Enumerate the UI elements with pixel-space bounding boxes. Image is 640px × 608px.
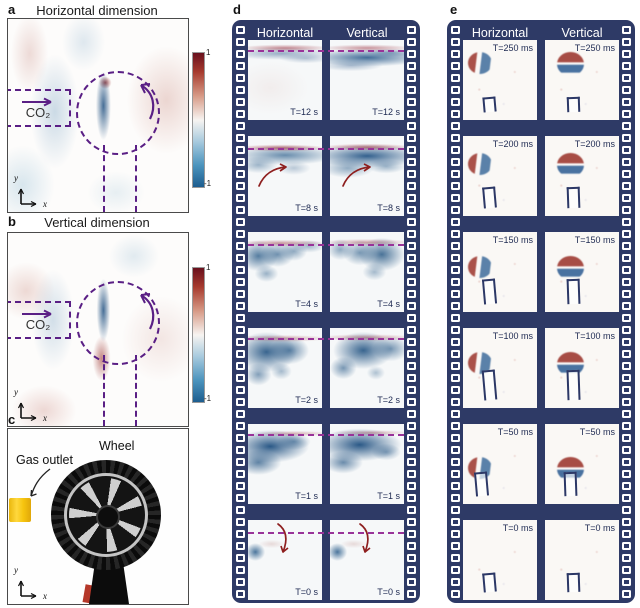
sprocket-hole [407, 338, 416, 346]
sprocket-hole [451, 230, 460, 238]
sprocket-hole [236, 494, 245, 502]
axis-arrows-icon [14, 390, 44, 422]
axis-arrows-icon [14, 176, 44, 208]
sprocket-hole [236, 362, 245, 370]
frame-e-250ms-horizontal: T=250 ms [463, 40, 537, 120]
sprocket-hole [622, 278, 631, 286]
outlet-tube-outline [566, 370, 580, 400]
sprocket-hole [407, 410, 416, 418]
time-label: T=150 ms [575, 235, 615, 245]
frame-e-250ms-vertical: T=250 ms [545, 40, 619, 120]
sprocket-hole [451, 62, 460, 70]
time-label: T=4 s [377, 299, 400, 309]
sprocket-hole [622, 158, 631, 166]
sprocket-hole [236, 26, 245, 34]
sprocket-hole [407, 386, 416, 394]
frame-d-1s-horizontal: T=1 s [248, 424, 322, 504]
sprocket-hole [236, 422, 245, 430]
time-label: T=200 ms [493, 139, 533, 149]
sprocket-hole [407, 566, 416, 574]
sprocket-hole [451, 146, 460, 154]
axis-y-label: y [14, 173, 18, 183]
panel-b-image: CO₂ y x [7, 232, 189, 427]
outlet-tube-outline [567, 279, 581, 304]
gas-outlet-nozzle [9, 498, 31, 522]
sprocket-hole [407, 494, 416, 502]
time-label: T=0 ms [503, 523, 533, 533]
wheel-hub [96, 505, 120, 529]
sprocket-hole [622, 254, 631, 262]
sprocket-hole [451, 38, 460, 46]
gas-level-dashed-line [248, 148, 404, 150]
sprocket-hole [407, 314, 416, 322]
colorbar-a [192, 52, 205, 188]
sprocket-hole [451, 578, 460, 586]
rotation-arrow-icon [126, 79, 156, 123]
sprocket-hole [407, 398, 416, 406]
sprocket-hole [236, 230, 245, 238]
sprocket-hole [622, 110, 631, 118]
frame-d-12s-horizontal: T=12 s [248, 40, 322, 120]
sprocket-hole [622, 134, 631, 142]
time-label: T=1 s [377, 491, 400, 501]
gas-level-dashed-line [248, 338, 404, 340]
sprocket-hole [451, 506, 460, 514]
sprocket-hole [451, 338, 460, 346]
sprocket-hole [236, 458, 245, 466]
frame-d-2s-vertical: T=2 s [330, 328, 404, 408]
film-sprockets-right [619, 20, 634, 603]
sprocket-hole [407, 50, 416, 58]
sprocket-hole [407, 26, 416, 34]
sprocket-hole [622, 38, 631, 46]
sprocket-hole [622, 566, 631, 574]
sprocket-hole [451, 158, 460, 166]
pointer-arrow-icon [24, 467, 54, 501]
sprocket-hole [622, 314, 631, 322]
sprocket-hole [407, 110, 416, 118]
frame-e-50ms-horizontal: T=50 ms [463, 424, 537, 504]
sprocket-hole [407, 86, 416, 94]
frame-e-100ms-vertical: T=100 ms [545, 328, 619, 408]
outlet-tube-outline [482, 369, 498, 400]
sprocket-hole [407, 506, 416, 514]
sprocket-hole [622, 122, 631, 130]
sprocket-hole [622, 386, 631, 394]
sprocket-hole [407, 542, 416, 550]
sprocket-hole [407, 62, 416, 70]
axis-y-label: y [14, 565, 18, 575]
wheel-stem-outline [103, 355, 137, 426]
sprocket-hole [236, 518, 245, 526]
colorbar-b [192, 267, 205, 403]
sprocket-hole [451, 278, 460, 286]
sprocket-hole [451, 254, 460, 262]
sprocket-hole [236, 74, 245, 82]
sprocket-hole [451, 326, 460, 334]
film-strip-seconds: Horizontal Vertical T=12 s T=12 s T=8 s … [232, 20, 420, 603]
frame-e-0ms-horizontal: T=0 ms [463, 520, 537, 600]
sprocket-hole [236, 542, 245, 550]
time-label: T=1 s [295, 491, 318, 501]
vortex-blob [557, 256, 584, 280]
sprocket-hole [451, 458, 460, 466]
sprocket-hole [451, 314, 460, 322]
outlet-tube-outline [567, 187, 581, 208]
co2-inlet-box: CO₂ [7, 89, 71, 127]
sprocket-hole [451, 182, 460, 190]
sprocket-hole [407, 266, 416, 274]
wheel-label: Wheel [99, 439, 134, 453]
time-label: T=12 s [290, 107, 318, 117]
drop-arrow-icon [352, 522, 378, 558]
sprocket-hole [451, 374, 460, 382]
sprocket-hole [451, 98, 460, 106]
outlet-tube-outline [482, 278, 497, 304]
sprocket-hole [236, 194, 245, 202]
sprocket-hole [622, 230, 631, 238]
axis-x-label: x [43, 591, 47, 601]
sprocket-hole [622, 218, 631, 226]
sprocket-hole [622, 554, 631, 562]
time-label: T=2 s [295, 395, 318, 405]
figure-page: a Horizontal dimension CO₂ y x 1 -1 b [0, 0, 640, 608]
co2-inlet-box: CO₂ [7, 301, 71, 339]
sprocket-hole [236, 470, 245, 478]
film-strip-milliseconds: Horizontal Vertical T=250 ms T=250 ms T=… [447, 20, 635, 603]
sprocket-hole [236, 278, 245, 286]
sprocket-hole [622, 458, 631, 466]
sprocket-hole [451, 170, 460, 178]
sprocket-hole [622, 302, 631, 310]
sprocket-hole [407, 434, 416, 442]
time-label: T=100 ms [493, 331, 533, 341]
sprocket-hole [451, 410, 460, 418]
sprocket-hole [407, 362, 416, 370]
frame-e-50ms-vertical: T=50 ms [545, 424, 619, 504]
axis-x-label: x [43, 199, 47, 209]
sprocket-hole [407, 146, 416, 154]
panel-a-title: Horizontal dimension [7, 3, 187, 18]
time-label: T=150 ms [493, 235, 533, 245]
sprocket-hole [407, 590, 416, 598]
sprocket-hole [407, 518, 416, 526]
frame-d-2s-horizontal: T=2 s [248, 328, 322, 408]
sprocket-hole [407, 122, 416, 130]
wheel-photo [51, 460, 161, 570]
sprocket-hole [622, 518, 631, 526]
sprocket-hole [407, 230, 416, 238]
sprocket-hole [407, 446, 416, 454]
time-label: T=200 ms [575, 139, 615, 149]
sprocket-hole [451, 302, 460, 310]
sprocket-hole [236, 182, 245, 190]
sprocket-hole [622, 542, 631, 550]
sprocket-hole [451, 386, 460, 394]
frame-e-200ms-vertical: T=200 ms [545, 136, 619, 216]
film-sprockets-left [448, 20, 463, 603]
sprocket-hole [236, 110, 245, 118]
colorbar-a-min: -1 [204, 179, 211, 188]
frame-d-12s-vertical: T=12 s [330, 40, 404, 120]
axis-x-label: x [43, 413, 47, 423]
sprocket-hole [451, 266, 460, 274]
colorbar-b-max: 1 [206, 263, 210, 272]
sprocket-hole [407, 422, 416, 430]
column-header-horizontal: Horizontal [463, 26, 537, 40]
sprocket-hole [451, 494, 460, 502]
time-label: T=250 ms [493, 43, 533, 53]
sprocket-hole [622, 266, 631, 274]
frame-e-0ms-vertical: T=0 ms [545, 520, 619, 600]
sprocket-hole [622, 326, 631, 334]
sprocket-hole [622, 350, 631, 358]
sprocket-hole [236, 398, 245, 406]
wheel-stem-outline [103, 145, 137, 212]
co2-label: CO₂ [26, 319, 51, 331]
column-header-horizontal: Horizontal [248, 26, 322, 40]
axis-indicator: y x [14, 390, 44, 422]
sprocket-hole [236, 62, 245, 70]
sprocket-hole [451, 398, 460, 406]
axis-y-label: y [14, 387, 18, 397]
column-header-vertical: Vertical [545, 26, 619, 40]
sprocket-hole [622, 578, 631, 586]
sprocket-hole [236, 350, 245, 358]
vortex-blob [557, 153, 584, 177]
sprocket-hole [236, 86, 245, 94]
sprocket-hole [407, 254, 416, 262]
frame-e-100ms-horizontal: T=100 ms [463, 328, 537, 408]
sprocket-hole [407, 134, 416, 142]
sprocket-hole [407, 206, 416, 214]
sprocket-hole [451, 350, 460, 358]
time-label: T=4 s [295, 299, 318, 309]
sprocket-hole [451, 446, 460, 454]
sprocket-hole [236, 146, 245, 154]
vortex-blob [468, 256, 492, 278]
sprocket-hole [622, 194, 631, 202]
sprocket-hole [407, 578, 416, 586]
sprocket-hole [236, 554, 245, 562]
sprocket-hole [236, 590, 245, 598]
time-label: T=0 s [295, 587, 318, 597]
sprocket-hole [622, 506, 631, 514]
panel-d-label: d [233, 2, 241, 17]
wheel-rim [64, 473, 148, 557]
frame-d-1s-vertical: T=1 s [330, 424, 404, 504]
sprocket-hole [622, 26, 631, 34]
sprocket-hole [622, 422, 631, 430]
outlet-tube-outline [567, 573, 581, 592]
sprocket-hole [407, 242, 416, 250]
sprocket-hole [451, 590, 460, 598]
gas-level-dashed-line [248, 434, 404, 436]
time-label: T=0 ms [585, 523, 615, 533]
vortex-blob [468, 153, 492, 175]
gas-level-dashed-line [248, 50, 404, 52]
sprocket-hole [451, 242, 460, 250]
sprocket-hole [236, 170, 245, 178]
sprocket-hole [451, 74, 460, 82]
sprocket-hole [451, 290, 460, 298]
sprocket-hole [407, 470, 416, 478]
sprocket-hole [622, 590, 631, 598]
sprocket-hole [236, 218, 245, 226]
sprocket-hole [622, 146, 631, 154]
gas-level-dashed-line [248, 244, 404, 246]
sprocket-hole [451, 218, 460, 226]
axis-arrows-icon [14, 568, 44, 600]
film-sprockets-right [404, 20, 419, 603]
gas-outlet-label: Gas outlet [16, 453, 73, 467]
sprocket-hole [407, 218, 416, 226]
time-label: T=8 s [377, 203, 400, 213]
rotation-arrow-icon [126, 289, 156, 333]
outlet-tube-outline [482, 96, 496, 112]
swirl-arrow-icon [256, 162, 294, 188]
sprocket-hole [622, 410, 631, 418]
axis-indicator: y x [14, 568, 44, 600]
sprocket-hole [407, 458, 416, 466]
sprocket-hole [451, 122, 460, 130]
sprocket-hole [407, 98, 416, 106]
sprocket-hole [622, 74, 631, 82]
drop-arrow-icon [270, 522, 296, 558]
outlet-tube-outline [482, 186, 497, 208]
wheel-arm [89, 565, 129, 604]
sprocket-hole [407, 38, 416, 46]
colorbar-a-max: 1 [206, 48, 210, 57]
sprocket-hole [407, 530, 416, 538]
time-label: T=100 ms [575, 331, 615, 341]
sprocket-hole [407, 170, 416, 178]
sprocket-hole [451, 434, 460, 442]
swirl-arrow-icon [340, 162, 378, 188]
sprocket-hole [236, 374, 245, 382]
outlet-tube-outline [482, 572, 497, 592]
sprocket-hole [451, 530, 460, 538]
time-label: T=50 ms [580, 427, 615, 437]
sprocket-hole [622, 242, 631, 250]
sprocket-hole [407, 554, 416, 562]
sprocket-hole [451, 554, 460, 562]
sprocket-hole [236, 434, 245, 442]
sprocket-hole [236, 530, 245, 538]
sprocket-hole [407, 326, 416, 334]
sprocket-hole [236, 410, 245, 418]
sprocket-hole [622, 50, 631, 58]
sprocket-hole [236, 38, 245, 46]
frame-e-200ms-horizontal: T=200 ms [463, 136, 537, 216]
sprocket-hole [451, 362, 460, 370]
sprocket-hole [622, 362, 631, 370]
time-label: T=50 ms [498, 427, 533, 437]
sprocket-hole [451, 194, 460, 202]
panel-a-image: CO₂ y x [7, 18, 189, 213]
sprocket-hole [622, 374, 631, 382]
film-sprockets-left [233, 20, 248, 603]
sprocket-hole [236, 50, 245, 58]
sprocket-hole [451, 542, 460, 550]
sprocket-hole [236, 338, 245, 346]
time-label: T=12 s [372, 107, 400, 117]
sprocket-hole [622, 530, 631, 538]
sprocket-hole [622, 470, 631, 478]
sprocket-hole [407, 182, 416, 190]
sprocket-hole [622, 98, 631, 106]
colorbar-b-min: -1 [204, 394, 211, 403]
panel-c-photo: Wheel Gas outlet y x [7, 428, 189, 605]
sprocket-hole [407, 278, 416, 286]
sprocket-hole [407, 194, 416, 202]
sprocket-hole [236, 314, 245, 322]
sprocket-hole [236, 254, 245, 262]
axis-indicator: y x [14, 176, 44, 208]
sprocket-hole [622, 398, 631, 406]
sprocket-hole [407, 74, 416, 82]
sprocket-hole [622, 182, 631, 190]
sprocket-hole [407, 374, 416, 382]
sprocket-hole [236, 98, 245, 106]
sprocket-hole [451, 50, 460, 58]
sprocket-hole [451, 470, 460, 478]
sprocket-hole [236, 566, 245, 574]
sprocket-hole [622, 482, 631, 490]
sprocket-hole [451, 482, 460, 490]
sprocket-hole [622, 206, 631, 214]
sprocket-hole [451, 518, 460, 526]
time-label: T=0 s [377, 587, 400, 597]
sprocket-hole [236, 122, 245, 130]
outlet-tube-outline [564, 472, 578, 496]
sprocket-hole [236, 206, 245, 214]
sprocket-hole [622, 446, 631, 454]
sprocket-hole [622, 170, 631, 178]
panel-e-label: e [450, 2, 457, 17]
sprocket-hole [622, 62, 631, 70]
sprocket-hole [236, 242, 245, 250]
panel-c-label: c [8, 412, 15, 427]
sprocket-hole [451, 26, 460, 34]
panel-b-title: Vertical dimension [7, 215, 187, 230]
sprocket-hole [622, 494, 631, 502]
sprocket-hole [236, 446, 245, 454]
vortex-blob [557, 52, 584, 76]
outlet-tube-outline [474, 471, 489, 496]
sprocket-hole [451, 566, 460, 574]
frame-e-150ms-vertical: T=150 ms [545, 232, 619, 312]
sprocket-hole [407, 482, 416, 490]
sprocket-hole [236, 386, 245, 394]
sprocket-hole [236, 578, 245, 586]
outlet-tube-outline [567, 97, 581, 112]
sprocket-hole [451, 110, 460, 118]
sprocket-hole [451, 422, 460, 430]
time-label: T=250 ms [575, 43, 615, 53]
sprocket-hole [236, 158, 245, 166]
sprocket-hole [622, 290, 631, 298]
sprocket-hole [236, 302, 245, 310]
sprocket-hole [236, 290, 245, 298]
time-label: T=2 s [377, 395, 400, 405]
sprocket-hole [407, 158, 416, 166]
sprocket-hole [407, 290, 416, 298]
sprocket-hole [451, 206, 460, 214]
sprocket-hole [622, 434, 631, 442]
sprocket-hole [451, 134, 460, 142]
sprocket-hole [622, 338, 631, 346]
